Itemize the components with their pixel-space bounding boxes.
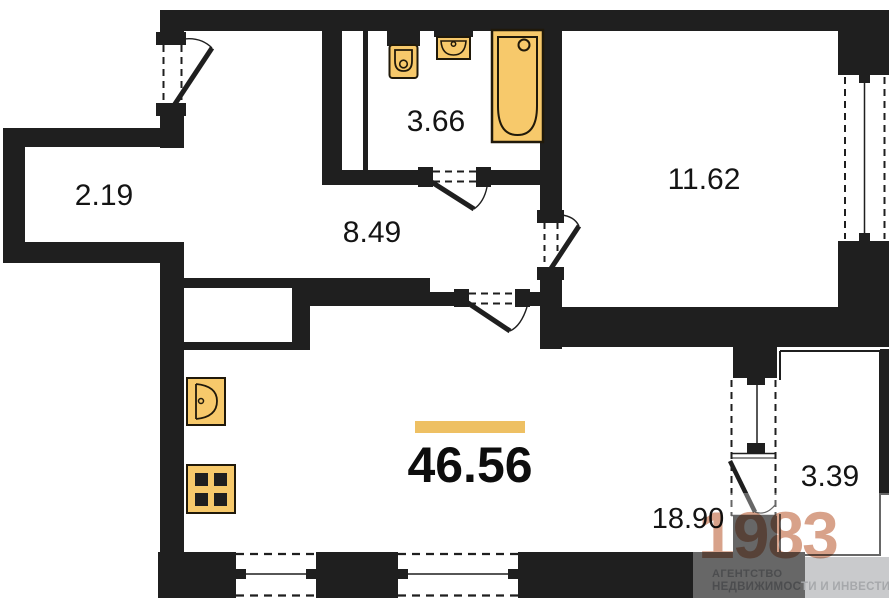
bathtub-icon xyxy=(492,30,543,142)
floor-plan: 2.19 3.66 8.49 11.62 46.56 18.90 3.39 19… xyxy=(0,0,889,600)
wall-bathroom-bottom-left xyxy=(322,170,420,185)
wall-niche-right xyxy=(292,288,310,350)
agency-tagline-line1: АГЕНТСТВО xyxy=(712,568,782,580)
area-label-hallway: 8.49 xyxy=(336,216,408,250)
toilet-icon xyxy=(387,31,420,78)
agency-tagline-line2: НЕДВИЖИМОСТИ И ИНВЕСТИЦИЙ xyxy=(712,581,889,593)
wall-bedroom-left-upper xyxy=(540,31,562,222)
total-area-label: 46.56 xyxy=(404,436,536,494)
area-label-bathroom: 3.66 xyxy=(400,105,472,139)
total-area-accent-bar xyxy=(415,421,525,433)
area-label-balcony: 3.39 xyxy=(794,460,866,494)
wall-living-right-upper xyxy=(733,347,777,378)
tagline-light-part: ТИ И ИНВЕСТИЦИЙ xyxy=(801,581,889,593)
window-bottom-2-opening xyxy=(398,552,518,598)
window-bottom-1-opening xyxy=(236,552,316,598)
wall-left-below-entrance xyxy=(160,115,184,148)
wall-bathroom-left xyxy=(322,31,342,183)
wall-bathroom-bottom-right xyxy=(490,170,540,185)
area-label-bedroom: 11.62 xyxy=(662,163,746,197)
bathroom-sink-icon xyxy=(434,31,473,59)
bathroom-door xyxy=(418,167,491,209)
wall-right-top xyxy=(838,10,889,75)
wall-band-thin-left xyxy=(430,292,458,306)
area-label-closet: 2.19 xyxy=(69,179,139,213)
wall-left-lower xyxy=(160,242,184,554)
wall-band-thin-right xyxy=(530,292,562,306)
wall-balcony-right-strip xyxy=(880,349,889,495)
wall-shaft-edge xyxy=(363,31,368,172)
wall-top xyxy=(160,10,889,31)
wall-bedroom-bottom xyxy=(540,307,889,347)
duct-niche xyxy=(184,288,292,342)
stove-icon xyxy=(187,465,235,513)
window-right-opening xyxy=(842,75,889,241)
kitchen-sink-icon xyxy=(187,378,225,425)
entrance-door xyxy=(156,32,212,116)
wall-closet-top xyxy=(3,128,162,147)
wall-right-below-window xyxy=(838,241,889,313)
wall-niche-bottom xyxy=(184,342,308,350)
tagline-dark-part: НЕДВИЖИМОС xyxy=(712,581,801,593)
agency-logo: 1983 xyxy=(698,505,837,565)
hall-living-door xyxy=(454,289,530,331)
wall-left-above-entrance xyxy=(160,10,184,33)
wall-closet-bottom xyxy=(3,242,162,263)
